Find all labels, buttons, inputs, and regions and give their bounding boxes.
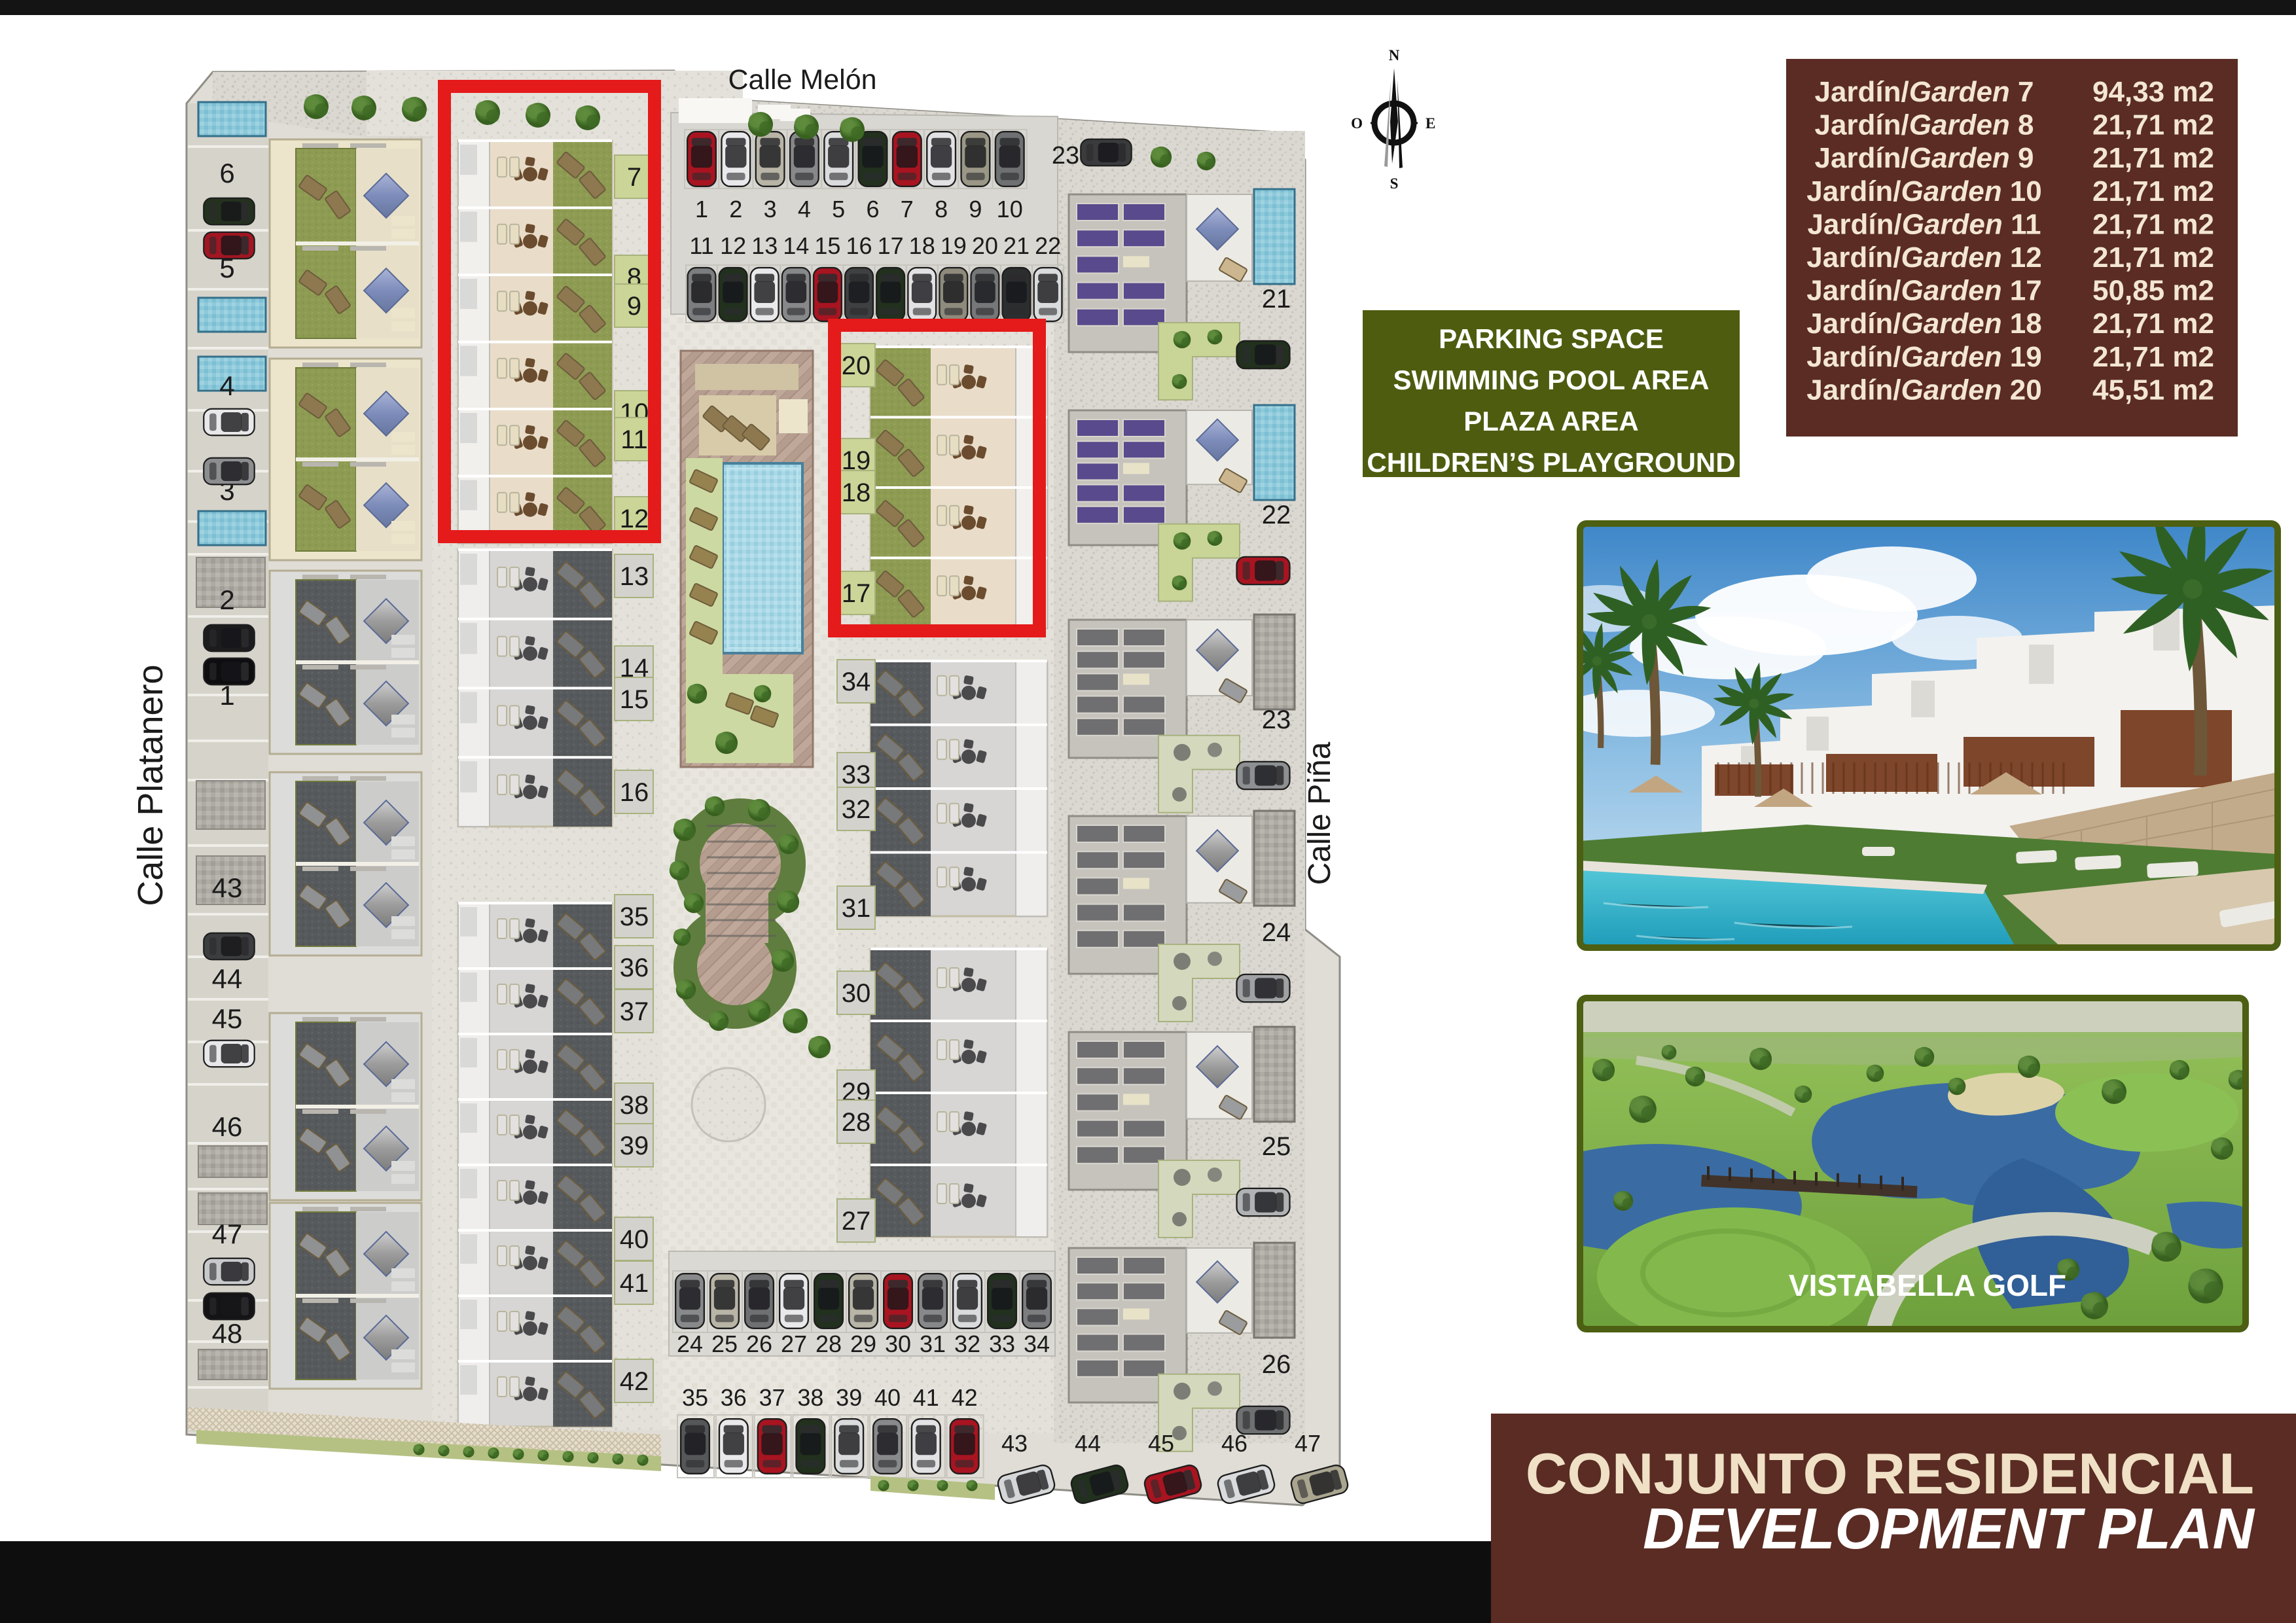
svg-text:29: 29 — [850, 1330, 876, 1357]
svg-text:36: 36 — [721, 1384, 747, 1411]
svg-text:E: E — [1426, 115, 1435, 132]
svg-text:17: 17 — [842, 579, 871, 608]
svg-text:PLAZA AREA: PLAZA AREA — [1463, 406, 1639, 437]
svg-text:26: 26 — [1262, 1350, 1291, 1379]
svg-text:15: 15 — [814, 232, 840, 259]
svg-text:16: 16 — [846, 232, 872, 259]
svg-text:33: 33 — [989, 1330, 1015, 1357]
svg-text:27: 27 — [842, 1207, 871, 1236]
svg-text:48: 48 — [212, 1318, 243, 1349]
svg-text:O: O — [1351, 115, 1363, 132]
svg-text:SWIMMING POOL AREA: SWIMMING POOL AREA — [1393, 365, 1710, 395]
svg-text:27: 27 — [781, 1330, 807, 1357]
svg-text:7: 7 — [627, 163, 641, 192]
svg-text:45,51 m2: 45,51 m2 — [2092, 374, 2214, 406]
svg-text:31: 31 — [920, 1330, 946, 1357]
svg-text:44: 44 — [212, 963, 243, 994]
svg-text:40: 40 — [620, 1225, 649, 1254]
svg-text:30: 30 — [842, 979, 871, 1008]
svg-text:43: 43 — [1001, 1430, 1028, 1457]
svg-text:Jardín/Garden 11: Jardín/Garden 11 — [1807, 208, 2041, 240]
svg-text:PARKING SPACE: PARKING SPACE — [1439, 323, 1664, 354]
svg-text:26: 26 — [746, 1330, 772, 1357]
svg-text:41: 41 — [620, 1269, 649, 1298]
svg-text:45: 45 — [212, 1003, 243, 1034]
svg-text:94,33 m2: 94,33 m2 — [2092, 76, 2214, 108]
svg-text:24: 24 — [1262, 918, 1291, 947]
svg-text:21,71 m2: 21,71 m2 — [2092, 208, 2214, 240]
svg-text:38: 38 — [620, 1091, 649, 1120]
svg-text:14: 14 — [783, 232, 809, 259]
svg-text:Calle Platanero: Calle Platanero — [131, 664, 170, 906]
svg-text:43: 43 — [212, 872, 243, 903]
svg-text:21,71 m2: 21,71 m2 — [2092, 241, 2214, 274]
svg-text:35: 35 — [620, 902, 649, 931]
svg-text:23: 23 — [1052, 142, 1079, 169]
svg-text:CHILDREN’S PLAYGROUND: CHILDREN’S PLAYGROUND — [1367, 447, 1735, 478]
svg-text:45: 45 — [1148, 1430, 1174, 1457]
svg-text:20: 20 — [972, 232, 998, 259]
svg-text:4: 4 — [798, 196, 811, 223]
svg-text:39: 39 — [836, 1384, 862, 1411]
svg-text:S: S — [1390, 175, 1399, 192]
svg-text:6: 6 — [219, 158, 234, 188]
svg-text:1: 1 — [695, 196, 708, 223]
svg-text:42: 42 — [952, 1384, 978, 1411]
svg-text:47: 47 — [212, 1219, 243, 1249]
svg-text:42: 42 — [620, 1367, 649, 1396]
svg-text:28: 28 — [842, 1108, 871, 1137]
svg-text:32: 32 — [954, 1330, 980, 1357]
svg-text:Jardín/Garden 12: Jardín/Garden 12 — [1806, 241, 2042, 274]
svg-text:24: 24 — [677, 1330, 703, 1357]
svg-text:30: 30 — [885, 1330, 911, 1357]
svg-text:19: 19 — [941, 232, 967, 259]
svg-text:50,85 m2: 50,85 m2 — [2092, 275, 2214, 307]
svg-text:Jardín/Garden 18: Jardín/Garden 18 — [1806, 308, 2042, 340]
svg-text:40: 40 — [874, 1384, 901, 1411]
svg-text:21: 21 — [1262, 285, 1291, 313]
svg-text:12: 12 — [720, 232, 746, 259]
svg-text:38: 38 — [797, 1384, 823, 1411]
svg-text:21: 21 — [1003, 232, 1030, 259]
svg-text:22: 22 — [1262, 501, 1291, 529]
svg-text:DEVELOPMENT PLAN: DEVELOPMENT PLAN — [1643, 1496, 2255, 1561]
svg-text:34: 34 — [1024, 1330, 1050, 1357]
svg-text:8: 8 — [935, 196, 948, 223]
svg-text:37: 37 — [759, 1384, 785, 1411]
svg-text:7: 7 — [901, 196, 914, 223]
svg-text:6: 6 — [866, 196, 879, 223]
svg-text:36: 36 — [620, 954, 649, 982]
svg-text:5: 5 — [832, 196, 845, 223]
svg-text:47: 47 — [1295, 1430, 1321, 1457]
svg-text:32: 32 — [842, 795, 871, 824]
svg-text:15: 15 — [620, 685, 649, 714]
svg-text:20: 20 — [842, 351, 871, 380]
svg-text:23: 23 — [1262, 705, 1291, 734]
svg-text:18: 18 — [842, 478, 871, 507]
svg-text:46: 46 — [1221, 1430, 1247, 1457]
svg-text:39: 39 — [620, 1132, 649, 1160]
svg-text:10: 10 — [997, 196, 1023, 223]
svg-text:Jardín/Garden 8: Jardín/Garden 8 — [1814, 109, 2034, 141]
svg-text:13: 13 — [751, 232, 778, 259]
svg-text:37: 37 — [620, 997, 649, 1026]
svg-text:21,71 m2: 21,71 m2 — [2092, 341, 2214, 373]
svg-text:35: 35 — [682, 1384, 708, 1411]
svg-text:2: 2 — [219, 584, 234, 615]
svg-text:11: 11 — [689, 232, 713, 259]
svg-text:46: 46 — [212, 1111, 243, 1142]
svg-text:Jardín/Garden 9: Jardín/Garden 9 — [1814, 142, 2034, 174]
svg-text:33: 33 — [842, 760, 871, 789]
svg-text:21,71 m2: 21,71 m2 — [2092, 109, 2214, 141]
svg-text:31: 31 — [842, 894, 871, 923]
svg-text:34: 34 — [842, 668, 871, 696]
svg-text:21,71 m2: 21,71 m2 — [2092, 142, 2214, 174]
svg-text:N: N — [1389, 47, 1400, 63]
svg-text:41: 41 — [913, 1384, 939, 1411]
svg-text:44: 44 — [1075, 1430, 1101, 1457]
svg-text:Jardín/Garden 10: Jardín/Garden 10 — [1806, 175, 2042, 207]
svg-text:12: 12 — [620, 505, 649, 533]
svg-text:18: 18 — [909, 232, 935, 259]
svg-text:Calle Melón: Calle Melón — [728, 64, 876, 96]
svg-text:28: 28 — [816, 1330, 842, 1357]
svg-text:21,71 m2: 21,71 m2 — [2092, 308, 2214, 340]
svg-text:9: 9 — [969, 196, 982, 223]
svg-text:11: 11 — [620, 425, 648, 454]
svg-text:VISTABELLA GOLF: VISTABELLA GOLF — [1789, 1268, 2066, 1302]
svg-text:25: 25 — [711, 1330, 738, 1357]
svg-text:17: 17 — [878, 232, 904, 259]
svg-text:Jardín/Garden 17: Jardín/Garden 17 — [1806, 275, 2042, 307]
svg-text:21,71 m2: 21,71 m2 — [2092, 175, 2214, 207]
svg-text:13: 13 — [620, 562, 649, 591]
svg-text:Jardín/Garden 20: Jardín/Garden 20 — [1806, 374, 2042, 406]
svg-text:2: 2 — [729, 196, 742, 223]
svg-text:22: 22 — [1035, 232, 1061, 259]
svg-text:Jardín/Garden 19: Jardín/Garden 19 — [1806, 341, 2042, 373]
svg-text:16: 16 — [620, 778, 649, 807]
svg-text:3: 3 — [764, 196, 777, 223]
svg-text:25: 25 — [1262, 1132, 1291, 1161]
svg-text:9: 9 — [627, 292, 641, 321]
svg-text:4: 4 — [219, 370, 234, 401]
svg-text:Calle Piña: Calle Piña — [1302, 741, 1337, 885]
svg-text:Jardín/Garden 7: Jardín/Garden 7 — [1814, 76, 2034, 108]
